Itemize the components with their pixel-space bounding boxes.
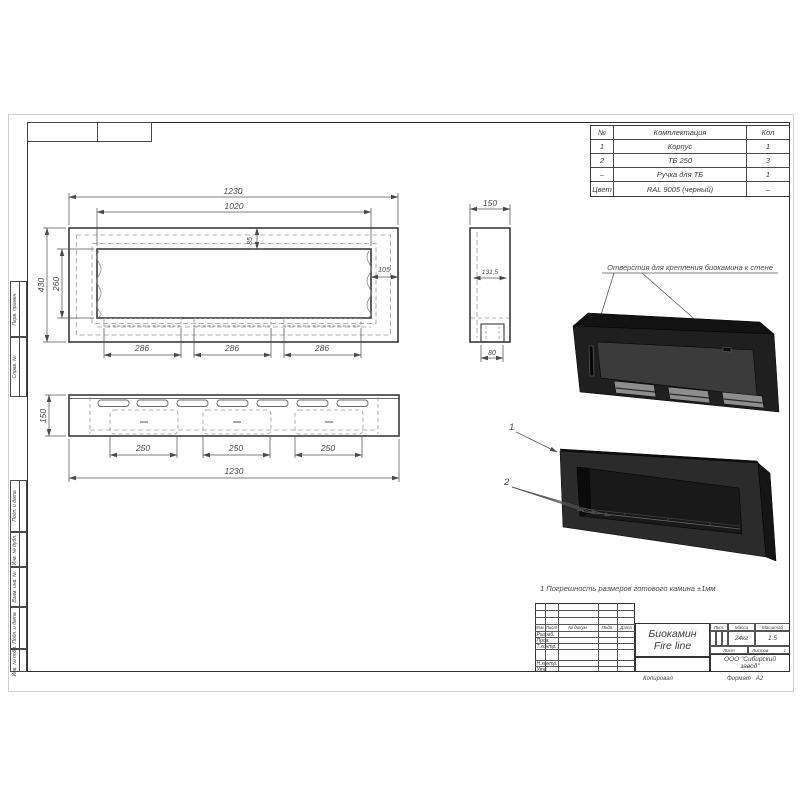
format-strip: Формат А2 xyxy=(727,676,797,682)
tb-sheets-value: 1 xyxy=(783,648,786,653)
dim-bottom-burner-1: 250 xyxy=(135,443,150,453)
dim-front-outer-height: 430 xyxy=(36,278,46,292)
tb-header-data: Дата xyxy=(617,625,635,630)
side-view: 150 131,5 80 xyxy=(470,198,510,362)
front-view: 1230 1020 430 260 85 105 286 286 286 xyxy=(36,186,398,358)
copied-by-label: Копировал xyxy=(628,676,688,682)
tb-sheets-cell: Листов 1 xyxy=(748,646,790,654)
fireplace-3d-front-view xyxy=(560,449,776,561)
tb-company-cell: ООО "Сибирский завод" xyxy=(710,654,790,672)
tb-row-tkontr: Т.контр. xyxy=(537,644,557,650)
dim-bottom-depth: 150 xyxy=(38,409,48,423)
tolerance-note: 1 Погрешность размеров готового камина ±… xyxy=(540,584,716,593)
tb-scale-label: Масштаб xyxy=(755,623,790,631)
tb-mass-label: Масса xyxy=(728,623,755,631)
company-line2: завод" xyxy=(740,663,759,670)
mounting-slot-left xyxy=(589,346,594,376)
dim-bottom-burner-2: 250 xyxy=(228,443,243,453)
dim-side-burner: 80 xyxy=(488,350,496,357)
dim-front-opening-width: 1020 xyxy=(225,201,244,211)
tb-sheet-label: Лист xyxy=(710,646,748,654)
dim-front-slot-1: 286 xyxy=(134,343,149,353)
company-line1: ООО "Сибирский xyxy=(724,656,776,663)
format-value: А2 xyxy=(756,676,763,682)
tb-sheets-label: Листов xyxy=(752,648,768,653)
dim-bottom-width: 1230 xyxy=(225,466,244,476)
drawing-sheet-page: Перв. примен. Справ. № Подп. и дата Инв.… xyxy=(0,0,800,800)
tb-doc-name-cell: Биокамин Fire line xyxy=(635,623,710,657)
mounting-holes-label: Отверстия для крепления биокамина к стен… xyxy=(607,263,773,272)
dim-front-opening-height: 260 xyxy=(51,277,61,292)
dim-side-inner: 131,5 xyxy=(482,269,499,276)
dim-bottom-burner-3: 250 xyxy=(320,443,335,453)
doc-name-line2: Fire line xyxy=(654,640,691,652)
dim-front-slot-3: 286 xyxy=(314,343,329,353)
bottom-view-dimensions xyxy=(45,395,399,482)
tb-row-utv: Утв. xyxy=(537,667,548,673)
mounting-slot-right xyxy=(723,347,731,352)
tb-header-podp: Подп. xyxy=(598,625,617,630)
tb-header-list: Лист xyxy=(545,625,558,630)
dim-front-slot-2: 286 xyxy=(224,343,239,353)
bottom-view: 150 250 250 250 1230 xyxy=(38,395,399,482)
dim-front-side-offset: 105 xyxy=(378,267,390,274)
callout-1-label: 1 xyxy=(509,422,514,433)
tb-mass-value: 24кг xyxy=(728,631,755,646)
tb-header-ndoc: № докум. xyxy=(558,625,598,630)
dim-side-depth: 150 xyxy=(483,198,497,208)
callout-2-label: 2 xyxy=(503,477,510,488)
tb-material-cell xyxy=(635,657,710,672)
doc-name-line1: Биокамин xyxy=(648,628,696,640)
fireplace-3d-back-view xyxy=(573,313,779,412)
dim-front-top-offset: 85 xyxy=(247,237,254,245)
tb-scale-value: 1:5 xyxy=(755,631,790,646)
tb-header-izm: Изм. xyxy=(535,625,545,630)
format-label: Формат xyxy=(727,676,751,682)
tb-lit-label: Лит. xyxy=(710,623,728,631)
dim-front-outer-width: 1230 xyxy=(224,186,243,196)
